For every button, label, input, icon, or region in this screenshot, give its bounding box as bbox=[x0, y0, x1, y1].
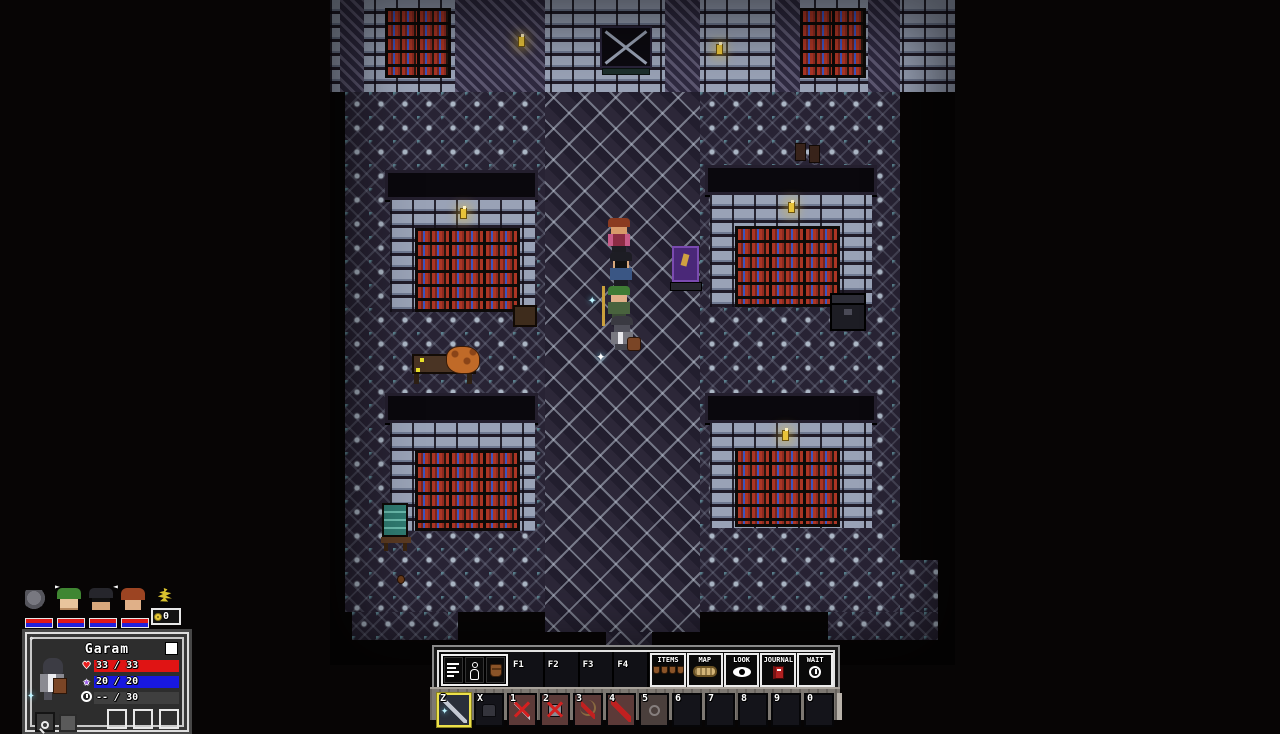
hotbar-slot-5[interactable]: 5 bbox=[639, 693, 669, 727]
candle-icon bbox=[518, 36, 525, 47]
bookshelf[interactable] bbox=[388, 11, 417, 75]
system-button-group bbox=[441, 654, 508, 686]
fkey-slot-f3[interactable]: F3 bbox=[580, 652, 615, 688]
eye-icon bbox=[733, 667, 751, 677]
coin-icon bbox=[154, 613, 162, 621]
hotbar-slot-2[interactable]: 2 bbox=[540, 693, 570, 727]
hotbar: Z ✦ X 1 2 3 4 5 6 7 8 9 0 bbox=[430, 687, 840, 720]
hotbar-slot-0[interactable]: 0 bbox=[804, 693, 834, 727]
wall-pillar bbox=[665, 0, 700, 92]
ground-sparkle-icon: ✦ bbox=[596, 346, 606, 365]
gold-amount: 0 bbox=[163, 611, 169, 622]
hotbar-slot-9[interactable]: 9 bbox=[771, 693, 801, 727]
clock-icon bbox=[79, 691, 94, 705]
portrait-health-bar bbox=[25, 618, 53, 628]
character-panel: ✧ Garam ✦ ♥ 33 / 33 ★ 20 / 20 bbox=[25, 632, 189, 732]
energy-row: -- / 30 bbox=[79, 690, 179, 705]
bookshelf-triplet[interactable] bbox=[735, 448, 840, 527]
bag-icon bbox=[490, 664, 502, 677]
wait-button[interactable]: WAIT bbox=[797, 653, 833, 687]
hotbar-slot-3[interactable]: 3 bbox=[573, 693, 603, 727]
energy-bar: -- / 30 bbox=[94, 692, 179, 704]
bookshelf[interactable] bbox=[803, 11, 832, 75]
map-scroll-icon bbox=[693, 666, 717, 677]
party-member-red-hair[interactable] bbox=[608, 218, 630, 252]
equip-slot[interactable] bbox=[107, 709, 127, 729]
gold-counter[interactable]: 0 bbox=[151, 608, 181, 625]
portrait-glasses[interactable] bbox=[89, 588, 113, 614]
candle-icon bbox=[788, 202, 795, 213]
bookshelf[interactable] bbox=[738, 451, 769, 524]
mana-row: ★ 20 / 20 bbox=[79, 674, 179, 689]
hotbar-slot-4[interactable]: 4 bbox=[606, 693, 636, 727]
portrait-green-hair[interactable] bbox=[57, 588, 81, 614]
magic-sparkle-icon: ✦ bbox=[588, 292, 596, 308]
log-button[interactable] bbox=[444, 657, 463, 683]
wall-pillar bbox=[868, 0, 900, 92]
fkey-slot-f2[interactable]: F2 bbox=[545, 652, 580, 688]
floor-corridor bbox=[545, 92, 700, 632]
look-button[interactable]: LOOK bbox=[724, 653, 760, 687]
boots-pair[interactable] bbox=[795, 143, 823, 165]
bookshelf[interactable] bbox=[420, 11, 449, 75]
close-button[interactable] bbox=[165, 642, 178, 655]
fkey-slot-f1[interactable]: F1 bbox=[510, 652, 545, 688]
bookshelf[interactable] bbox=[772, 229, 803, 304]
party-member-glasses[interactable] bbox=[610, 252, 632, 286]
door-ledge bbox=[602, 68, 650, 75]
bookshelf[interactable] bbox=[418, 453, 449, 528]
pouches-icon bbox=[652, 666, 684, 674]
bookshelf[interactable] bbox=[835, 11, 864, 75]
game-map: ✦ ✦ bbox=[330, 0, 955, 665]
candle-icon bbox=[716, 44, 723, 55]
gold-figurine-icon[interactable] bbox=[157, 588, 172, 605]
candle-icon bbox=[460, 208, 467, 219]
portrait-red-hair[interactable] bbox=[121, 588, 145, 614]
arrow-left-icon[interactable]: ◄ bbox=[113, 582, 118, 591]
bookshelf-triplet[interactable] bbox=[415, 450, 520, 531]
purple-banner-sign[interactable] bbox=[670, 246, 702, 294]
empty-button[interactable] bbox=[59, 714, 77, 732]
heart-icon: ♥ bbox=[79, 659, 94, 672]
candle-icon bbox=[782, 430, 789, 441]
hotbar-slot-8[interactable]: 8 bbox=[738, 693, 768, 727]
bookshelf[interactable] bbox=[806, 451, 837, 524]
bookshelf-pair-nw[interactable] bbox=[385, 8, 451, 78]
hotbar-slot-7[interactable]: 7 bbox=[705, 693, 735, 727]
north-door-niche[interactable] bbox=[600, 26, 652, 68]
party-member-green-hair[interactable] bbox=[608, 286, 630, 320]
party-portrait-row: ► ◄ 0 bbox=[25, 584, 185, 632]
health-row: ♥ 33 / 33 bbox=[79, 658, 179, 673]
inspect-button[interactable] bbox=[35, 712, 55, 732]
hotbar-slot-1[interactable]: 1 bbox=[507, 693, 537, 727]
bookshelf[interactable] bbox=[772, 451, 803, 524]
hotbar-slot-x[interactable]: X bbox=[474, 693, 504, 727]
character-name: Garam bbox=[35, 642, 179, 657]
hotbar-slot-6[interactable]: 6 bbox=[672, 693, 702, 727]
bookshelf-triplet[interactable] bbox=[415, 228, 520, 312]
floor-right-ext bbox=[900, 560, 938, 612]
floor-wing-right bbox=[828, 612, 938, 640]
small-table[interactable] bbox=[513, 305, 537, 327]
person-icon bbox=[472, 662, 478, 668]
roof-beam bbox=[385, 393, 538, 423]
teal-notice-board[interactable] bbox=[381, 503, 411, 551]
hotbar-slot-z[interactable]: Z ✦ bbox=[437, 693, 471, 727]
dagger-icon bbox=[514, 700, 530, 720]
star-icon: ★ bbox=[79, 675, 94, 688]
pack-critter[interactable] bbox=[627, 337, 641, 351]
health-bar: 33 / 33 bbox=[94, 660, 179, 672]
portrait-stone[interactable] bbox=[25, 590, 49, 614]
bookshelf[interactable] bbox=[452, 453, 483, 528]
fkey-slot-f4[interactable]: F4 bbox=[614, 652, 649, 688]
staff-icon bbox=[602, 286, 605, 326]
items-button[interactable]: ITEMS bbox=[650, 653, 686, 687]
hotbar-end-cap bbox=[837, 693, 842, 720]
roof-beam bbox=[385, 170, 538, 200]
wall-pillar bbox=[340, 0, 364, 92]
bookshelf[interactable] bbox=[486, 231, 517, 309]
bookshelf[interactable] bbox=[452, 231, 483, 309]
main-toolbar: F1 F2 F3 F4 ITEMS MAP LOOK JOURNAL WAIT bbox=[437, 650, 835, 690]
bookshelf-triplet[interactable] bbox=[735, 226, 840, 307]
equip-slot[interactable] bbox=[133, 709, 153, 729]
armor-icon bbox=[548, 704, 562, 717]
equip-slot[interactable] bbox=[159, 709, 179, 729]
inventory-button[interactable] bbox=[486, 657, 505, 683]
bookshelf-pair-ne[interactable] bbox=[800, 8, 866, 78]
character-button[interactable] bbox=[465, 657, 484, 683]
mana-bar: 20 / 20 bbox=[94, 676, 179, 688]
beetle[interactable] bbox=[397, 575, 405, 584]
roof-beam bbox=[705, 165, 877, 195]
book-icon bbox=[773, 666, 784, 679]
dark-chest[interactable] bbox=[830, 293, 866, 331]
bookshelf[interactable] bbox=[486, 453, 517, 528]
ring-icon bbox=[649, 705, 660, 716]
corner-sparkle-icon: ✧ bbox=[29, 634, 34, 644]
wooden-table[interactable] bbox=[412, 350, 482, 386]
portrait-health-bar bbox=[121, 618, 149, 628]
magnifier-icon bbox=[41, 721, 49, 729]
bookshelf[interactable] bbox=[738, 229, 769, 304]
portrait-health-bar bbox=[89, 618, 117, 628]
clock-icon bbox=[809, 666, 821, 678]
bookshelf[interactable] bbox=[418, 231, 449, 309]
map-button[interactable]: MAP bbox=[687, 653, 723, 687]
roof-beam bbox=[705, 393, 877, 423]
floor-wing-left bbox=[352, 612, 458, 640]
armor-icon bbox=[482, 704, 496, 717]
orange-beast[interactable] bbox=[446, 346, 480, 374]
wall-pillar bbox=[455, 0, 545, 92]
character-sprite: ✦ bbox=[35, 658, 73, 710]
wall-pillar bbox=[775, 0, 800, 92]
portrait-health-bar bbox=[57, 618, 85, 628]
journal-button[interactable]: JOURNAL bbox=[760, 653, 796, 687]
